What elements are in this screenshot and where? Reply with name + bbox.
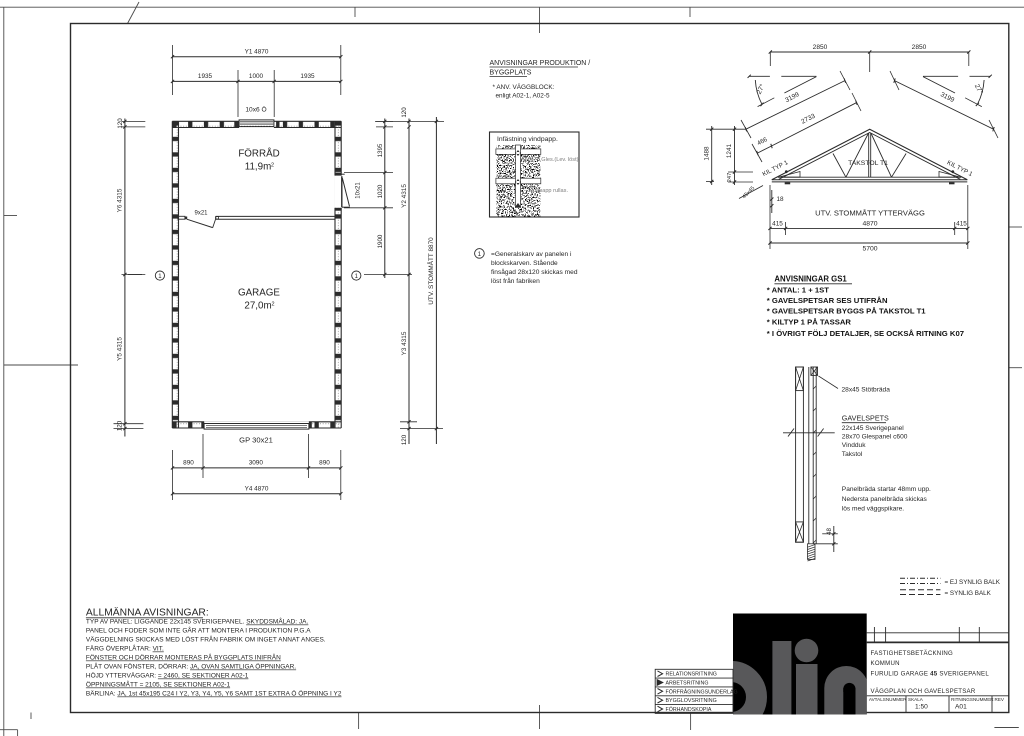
svg-text:TAKSTOL T1: TAKSTOL T1 xyxy=(848,160,888,167)
svg-text:28x45 Stötbräda: 28x45 Stötbräda xyxy=(842,387,891,394)
svg-text:A01: A01 xyxy=(955,704,967,711)
svg-text:890: 890 xyxy=(183,460,194,467)
svg-text:* ANTAL: 1 + 1ST: * ANTAL: 1 + 1ST xyxy=(767,285,829,294)
svg-text:FÖRFRÅGNINGSUNDERLAG: FÖRFRÅGNINGSUNDERLAG xyxy=(666,688,738,695)
svg-text:Takstol: Takstol xyxy=(842,451,863,458)
svg-text:ARBETSRITNING: ARBETSRITNING xyxy=(666,681,709,687)
svg-text:Y6 4315: Y6 4315 xyxy=(117,188,124,212)
svg-text:HÖJD YTTERVÄGGAR: = 2460, SE S: HÖJD YTTERVÄGGAR: = 2460, SE SEKTIONER A… xyxy=(86,672,249,680)
svg-text:=Generalskarv av panelen i: =Generalskarv av panelen i xyxy=(491,251,572,258)
svg-text:Y1 4870: Y1 4870 xyxy=(245,49,269,56)
svg-text:FÄRG ÖVERPLÅTAR: VIT.: FÄRG ÖVERPLÅTAR: VIT. xyxy=(86,644,164,653)
svg-text:1488: 1488 xyxy=(704,146,711,161)
svg-text:Y5 4315: Y5 4315 xyxy=(117,337,124,361)
svg-text:1: 1 xyxy=(478,251,482,258)
svg-text:* I ÖVRIGT FÖLJ DETALJER, SE O: * I ÖVRIGT FÖLJ DETALJER, SE OCKSÅ RITNI… xyxy=(767,329,964,338)
svg-text:1900: 1900 xyxy=(377,234,384,248)
svg-text:Y3 4315: Y3 4315 xyxy=(401,331,408,355)
svg-text:120: 120 xyxy=(117,420,124,431)
svg-text:* KILTYP 1 PÅ TASSAR: * KILTYP 1 PÅ TASSAR xyxy=(767,317,852,326)
svg-text:10x21: 10x21 xyxy=(356,182,362,199)
svg-text:10x6 Ö: 10x6 Ö xyxy=(245,105,266,113)
svg-text:Y2 4315: Y2 4315 xyxy=(401,184,408,208)
svg-text:Nedersta panelbräda skickas: Nedersta panelbräda skickas xyxy=(842,496,928,503)
svg-text:1935: 1935 xyxy=(300,73,315,80)
svg-text:FURULID GARAGE 45 SVERIGEPA: FURULID GARAGE 45 SVERIGEPANEL xyxy=(871,670,990,677)
svg-text:120: 120 xyxy=(401,107,408,118)
svg-text:VÄGGDELNING SKICKAS MED LÖST F: VÄGGDELNING SKICKAS MED LÖST FRÅN FABRIK… xyxy=(86,635,326,644)
svg-text:1:50: 1:50 xyxy=(915,704,928,711)
svg-text:GAVELSPETS: GAVELSPETS xyxy=(842,414,889,423)
svg-text:120: 120 xyxy=(117,118,124,129)
svg-text:9x21: 9x21 xyxy=(194,211,208,217)
svg-text:* GAVELSPETSAR BYGGS PÅ TAKSTO: * GAVELSPETSAR BYGGS PÅ TAKSTOL T1 xyxy=(767,307,926,316)
svg-text:ANVISNINGAR GS1: ANVISNINGAR GS1 xyxy=(774,275,847,284)
svg-text:2: 2 xyxy=(271,163,274,169)
svg-text:REV: REV xyxy=(995,697,1005,702)
svg-text:GP 30x21: GP 30x21 xyxy=(239,436,273,445)
svg-text:2: 2 xyxy=(271,302,274,308)
svg-text:AVTALSNUMMER: AVTALSNUMMER xyxy=(869,697,907,702)
svg-text:22x145 Sverigepanel: 22x145 Sverigepanel xyxy=(842,425,904,432)
svg-text:PLÅT OVAN FÖNSTER, DÖRRAR: JA,: PLÅT OVAN FÖNSTER, DÖRRAR: JA, OVAN SAMT… xyxy=(86,662,296,671)
svg-text:11,9m: 11,9m xyxy=(245,162,272,173)
svg-text:KOMMUN: KOMMUN xyxy=(871,660,900,667)
svg-text:Vindduk: Vindduk xyxy=(842,442,866,449)
svg-text:4870: 4870 xyxy=(862,220,877,227)
svg-text:2850: 2850 xyxy=(813,44,828,51)
svg-text:28x70 Glespanel c600: 28x70 Glespanel c600 xyxy=(842,434,908,441)
svg-text:UTV. STOMMÅTT 8870: UTV. STOMMÅTT 8870 xyxy=(426,237,435,305)
svg-text:ALLMÄNNA AVISNINGAR:: ALLMÄNNA AVISNINGAR: xyxy=(86,607,209,619)
svg-text:FÖNSTER OCH DÖRRAR MONTERAS PÅ: FÖNSTER OCH DÖRRAR MONTERAS PÅ BYGGPLATS… xyxy=(86,653,281,662)
svg-text:enligt A02-1, A02-5: enligt A02-1, A02-5 xyxy=(496,93,550,100)
svg-text:* ANV. VÄGGBLOCK:: * ANV. VÄGGBLOCK: xyxy=(493,83,555,91)
svg-text:415: 415 xyxy=(772,220,783,227)
svg-text:247: 247 xyxy=(727,173,733,183)
svg-text:48: 48 xyxy=(826,528,833,535)
svg-text:RELATIONSRITNING: RELATIONSRITNING xyxy=(666,672,717,678)
svg-text:ÖPPNINGSMÅTT = 2105, SE SEKTIO: ÖPPNINGSMÅTT = 2105, SE SEKTIONER A02-1 xyxy=(86,680,231,689)
svg-text:BYGGLOVSRITNING: BYGGLOVSRITNING xyxy=(666,698,717,704)
svg-text:lös med väggspikare.: lös med väggspikare. xyxy=(842,506,904,513)
svg-text:= EJ SYNLIG BALK: = EJ SYNLIG BALK xyxy=(945,579,1001,586)
svg-text:TYP AV PANEL: LIGGANDE 22x145: TYP AV PANEL: LIGGANDE 22x145 SVERIGEPAN… xyxy=(86,617,309,626)
svg-text:FASTIGHETSBETÄCKNING: FASTIGHETSBETÄCKNING xyxy=(871,650,954,657)
svg-text:RITNINGSNUMMER: RITNINGSNUMMER xyxy=(951,697,994,702)
svg-text:finsågad 28x120 skickas med: finsågad 28x120 skickas med xyxy=(491,268,578,276)
svg-text:Vindpapp rullas.: Vindpapp rullas. xyxy=(528,188,568,194)
svg-text:Y4 4870: Y4 4870 xyxy=(245,486,269,493)
svg-text:5700: 5700 xyxy=(862,246,877,253)
svg-text:1020: 1020 xyxy=(377,184,384,198)
svg-text:28x70 Gles.(Lev. löst): 28x70 Gles.(Lev. löst) xyxy=(525,157,579,163)
svg-text:Infästning vindpapp.: Infästning vindpapp. xyxy=(497,136,558,143)
svg-text:1395: 1395 xyxy=(377,143,384,157)
svg-text:löst från fabriken: löst från fabriken xyxy=(491,277,540,285)
svg-text:27,0m: 27,0m xyxy=(244,301,271,312)
svg-text:FÖRRÅD: FÖRRÅD xyxy=(238,149,279,160)
svg-text:GARAGE: GARAGE xyxy=(238,288,280,299)
svg-text:FÖRHANDSKOPIA: FÖRHANDSKOPIA xyxy=(666,706,712,713)
svg-text:ANVISNINGAR PRODUKTION /: ANVISNINGAR PRODUKTION / xyxy=(490,60,591,67)
svg-text:BYGGPLATS: BYGGPLATS xyxy=(490,70,532,77)
svg-text:2850: 2850 xyxy=(912,44,927,51)
svg-text:415: 415 xyxy=(956,220,967,227)
svg-text:1000: 1000 xyxy=(249,73,264,80)
svg-text:18: 18 xyxy=(777,196,785,203)
svg-text:UTV. STOMMÅTT YTTERVÄGG: UTV. STOMMÅTT YTTERVÄGG xyxy=(815,208,925,217)
svg-text:* GAVELSPETSAR SES UTIFRÅN: * GAVELSPETSAR SES UTIFRÅN xyxy=(767,296,888,305)
svg-text:= SYNLIG BALK: = SYNLIG BALK xyxy=(945,590,992,597)
svg-text:3090: 3090 xyxy=(249,460,264,467)
svg-text:BÄRLINA: JA, 1st 45x195 C24 I: BÄRLINA: JA, 1st 45x195 C24 I Y2, Y3, Y4… xyxy=(86,690,342,698)
svg-text:890: 890 xyxy=(319,460,330,467)
svg-text:1241: 1241 xyxy=(726,143,733,158)
svg-text:VÄGGPLAN OCH GAVELSPETSAR: VÄGGPLAN OCH GAVELSPETSAR xyxy=(871,688,976,695)
svg-text:Panelbräda startar 48mm upp.: Panelbräda startar 48mm upp. xyxy=(842,486,931,493)
svg-text:blockskarven. Stående: blockskarven. Stående xyxy=(491,259,558,267)
svg-text:SKALA: SKALA xyxy=(908,697,924,702)
svg-text:PANEL OCH FODER SOM INTE GÅR A: PANEL OCH FODER SOM INTE GÅR ATT MONTERA… xyxy=(86,626,311,635)
svg-text:1935: 1935 xyxy=(198,73,213,80)
svg-text:120: 120 xyxy=(401,434,408,445)
